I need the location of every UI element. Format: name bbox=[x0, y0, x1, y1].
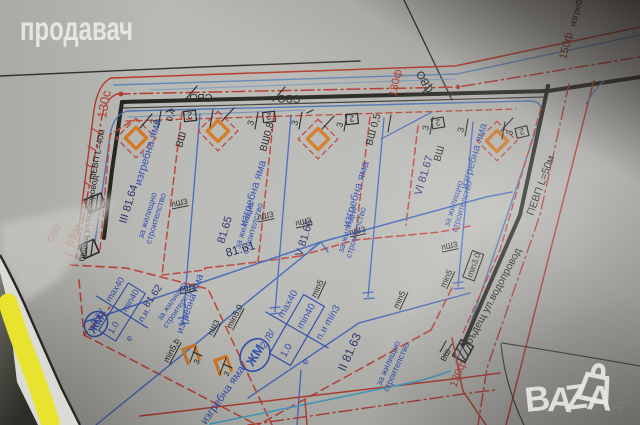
svg-text:продавач: продавач bbox=[20, 10, 133, 47]
